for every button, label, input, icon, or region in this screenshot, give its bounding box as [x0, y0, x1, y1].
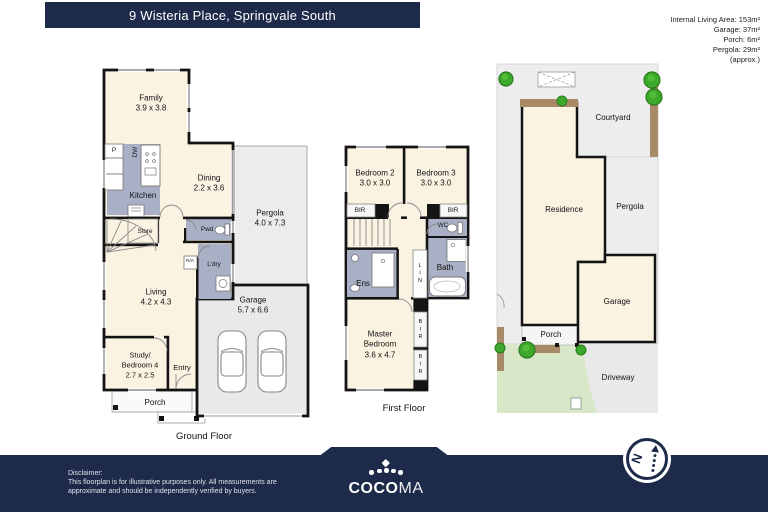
- label-bir-right: BIR: [448, 207, 459, 215]
- room-label-dining: Dining2.2 x 3.6: [194, 174, 225, 195]
- label-ensuite: Ens: [356, 279, 370, 289]
- washer-icon: [216, 276, 230, 291]
- label-return-air: R/A: [186, 259, 194, 265]
- room-label-living: Living4.2 x 4.3: [141, 288, 172, 309]
- label-wc: WC: [438, 222, 449, 230]
- basin-icon: [352, 255, 359, 262]
- label-laundry: L'dry: [207, 261, 220, 269]
- room-label-kitchen: Kitchen: [130, 191, 157, 201]
- area-line: (approx.): [670, 55, 760, 65]
- floorplan-drawing: [0, 0, 768, 512]
- label-bath: Bath: [437, 263, 453, 273]
- room-label-bedroom2: Bedroom 23.0 x 3.0: [355, 169, 394, 190]
- room-label-family: Family3.9 x 3.8: [136, 94, 167, 115]
- crown-icon: [369, 460, 403, 477]
- label-linen: LIN: [417, 263, 423, 286]
- label-porch: Porch: [145, 398, 166, 408]
- label-residence: Residence: [545, 205, 583, 215]
- label-powder: Pwd: [201, 226, 213, 234]
- room-label-study: Study/Bedroom 42.7 x 2.5: [122, 350, 159, 379]
- label-bir-v1: BIR: [418, 319, 424, 342]
- car-icon: [218, 331, 246, 392]
- disclaimer: Disclaimer: This floorplan is for illust…: [68, 469, 277, 496]
- floorplan-page: 9 Wisteria Place, Springvale South Inter…: [0, 0, 768, 512]
- room-label-garage: Garage5.7 x 6.6: [238, 296, 269, 317]
- area-line: Internal Living Area: 153m²: [670, 15, 760, 25]
- shower-icon: [372, 253, 394, 287]
- ground-floor-title: Ground Floor: [176, 431, 232, 443]
- compass-arrow: [648, 445, 660, 474]
- label-driveway: Driveway: [602, 373, 635, 383]
- label-dishwasher: DW: [132, 147, 140, 158]
- garden-bed: [520, 99, 578, 107]
- first-floor-title: First Floor: [383, 403, 426, 415]
- label-bir-left: BIR: [355, 207, 366, 215]
- area-line: Pergola: 29m²: [670, 45, 760, 55]
- label-pantry: P: [112, 147, 116, 155]
- label-site-porch: Porch: [541, 330, 562, 340]
- car-icon: [258, 331, 286, 392]
- room-label-bedroom3: Bedroom 33.0 x 3.0: [416, 169, 455, 190]
- toilet-icon: [215, 226, 225, 234]
- shower-icon: [447, 240, 466, 262]
- label-bir-v2: BIR: [418, 354, 424, 377]
- label-courtyard: Courtyard: [595, 113, 630, 123]
- brand-light: MA: [399, 480, 424, 497]
- label-store: Store: [137, 228, 152, 236]
- address-title: 9 Wisteria Place, Springvale South: [45, 2, 420, 28]
- island-bench: [141, 145, 160, 186]
- label-entry: Entry: [173, 363, 191, 373]
- brand-bold: COCO: [349, 480, 399, 497]
- north-compass-icon: N: [626, 438, 668, 480]
- area-line: Porch: 6m²: [670, 35, 760, 45]
- room-label-pergola: Pergola4.0 x 7.3: [255, 209, 286, 230]
- area-line: Garage: 37m²: [670, 25, 760, 35]
- brand-logo: COCOMA: [330, 480, 442, 498]
- site-plan-geometry: [495, 64, 662, 413]
- compass-north-letter: N: [628, 452, 645, 466]
- letterbox: [571, 398, 581, 409]
- label-site-garage: Garage: [604, 297, 631, 307]
- label-site-pergola: Pergola: [616, 202, 644, 212]
- area-summary: Internal Living Area: 153m² Garage: 37m²…: [670, 15, 760, 64]
- room-label-master: MasterBedroom3.6 x 4.7: [364, 329, 396, 360]
